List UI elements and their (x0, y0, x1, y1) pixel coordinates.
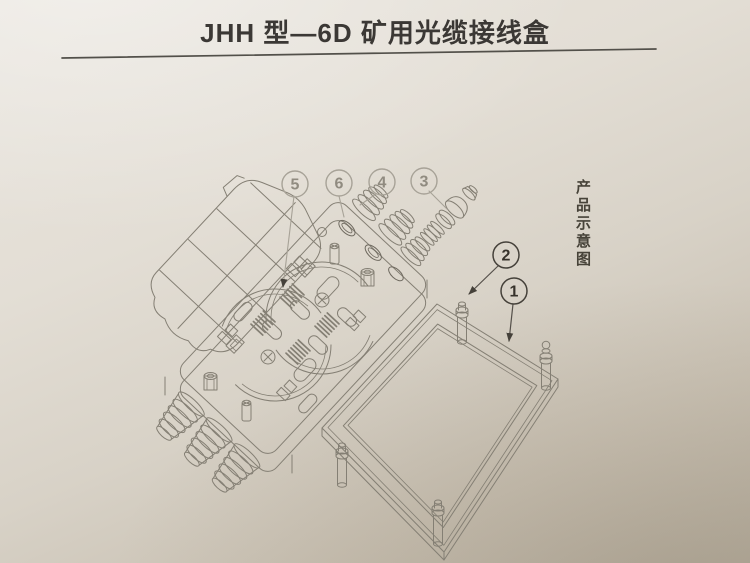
plate-bolt (336, 443, 348, 487)
photo-page: JHH 型—6D 矿用光缆接线盒 (0, 0, 750, 563)
callout-6-label: 6 (335, 176, 344, 193)
tray-coil (286, 340, 310, 364)
callout-1: 1 (501, 278, 527, 304)
callout-3: 3 (411, 168, 437, 194)
cover-plate (322, 302, 558, 560)
plate-bolt (456, 302, 468, 344)
lid-tab (221, 172, 245, 196)
cable-gland (205, 441, 263, 500)
leader-6 (339, 196, 344, 217)
callout-5-label: 5 (291, 177, 300, 194)
leader-3 (429, 191, 447, 209)
cable-gland (350, 179, 394, 223)
hex-standoff (361, 269, 374, 287)
tray-coil (315, 313, 339, 337)
tray-coil (280, 284, 304, 308)
callout-3-label: 3 (420, 174, 429, 191)
cable-gland (399, 232, 435, 268)
floor-screw (242, 400, 251, 421)
leader-2 (469, 266, 498, 294)
callout-6: 6 (326, 170, 352, 196)
callout-1-label: 1 (510, 284, 519, 301)
callout-2-label: 2 (502, 248, 511, 265)
cable-gland (149, 389, 207, 448)
callout-5: 5 (282, 171, 308, 197)
floor-screw (330, 243, 339, 264)
callout-2: 2 (493, 242, 519, 268)
tray-screw (315, 293, 329, 307)
callout-4-label: 4 (378, 175, 387, 192)
hex-standoff (204, 373, 217, 391)
tray-screw (261, 350, 275, 364)
title-underline (62, 49, 656, 58)
cable-gland (376, 204, 420, 248)
side-caption: 产品示意图 (567, 179, 593, 289)
cable-gland (177, 415, 235, 474)
plate-bolt (540, 341, 552, 390)
exploded-diagram: 5 6 4 3 2 1 (0, 0, 750, 563)
callout-4: 4 (369, 169, 395, 195)
body-top (175, 124, 499, 458)
leader-1 (509, 304, 513, 341)
